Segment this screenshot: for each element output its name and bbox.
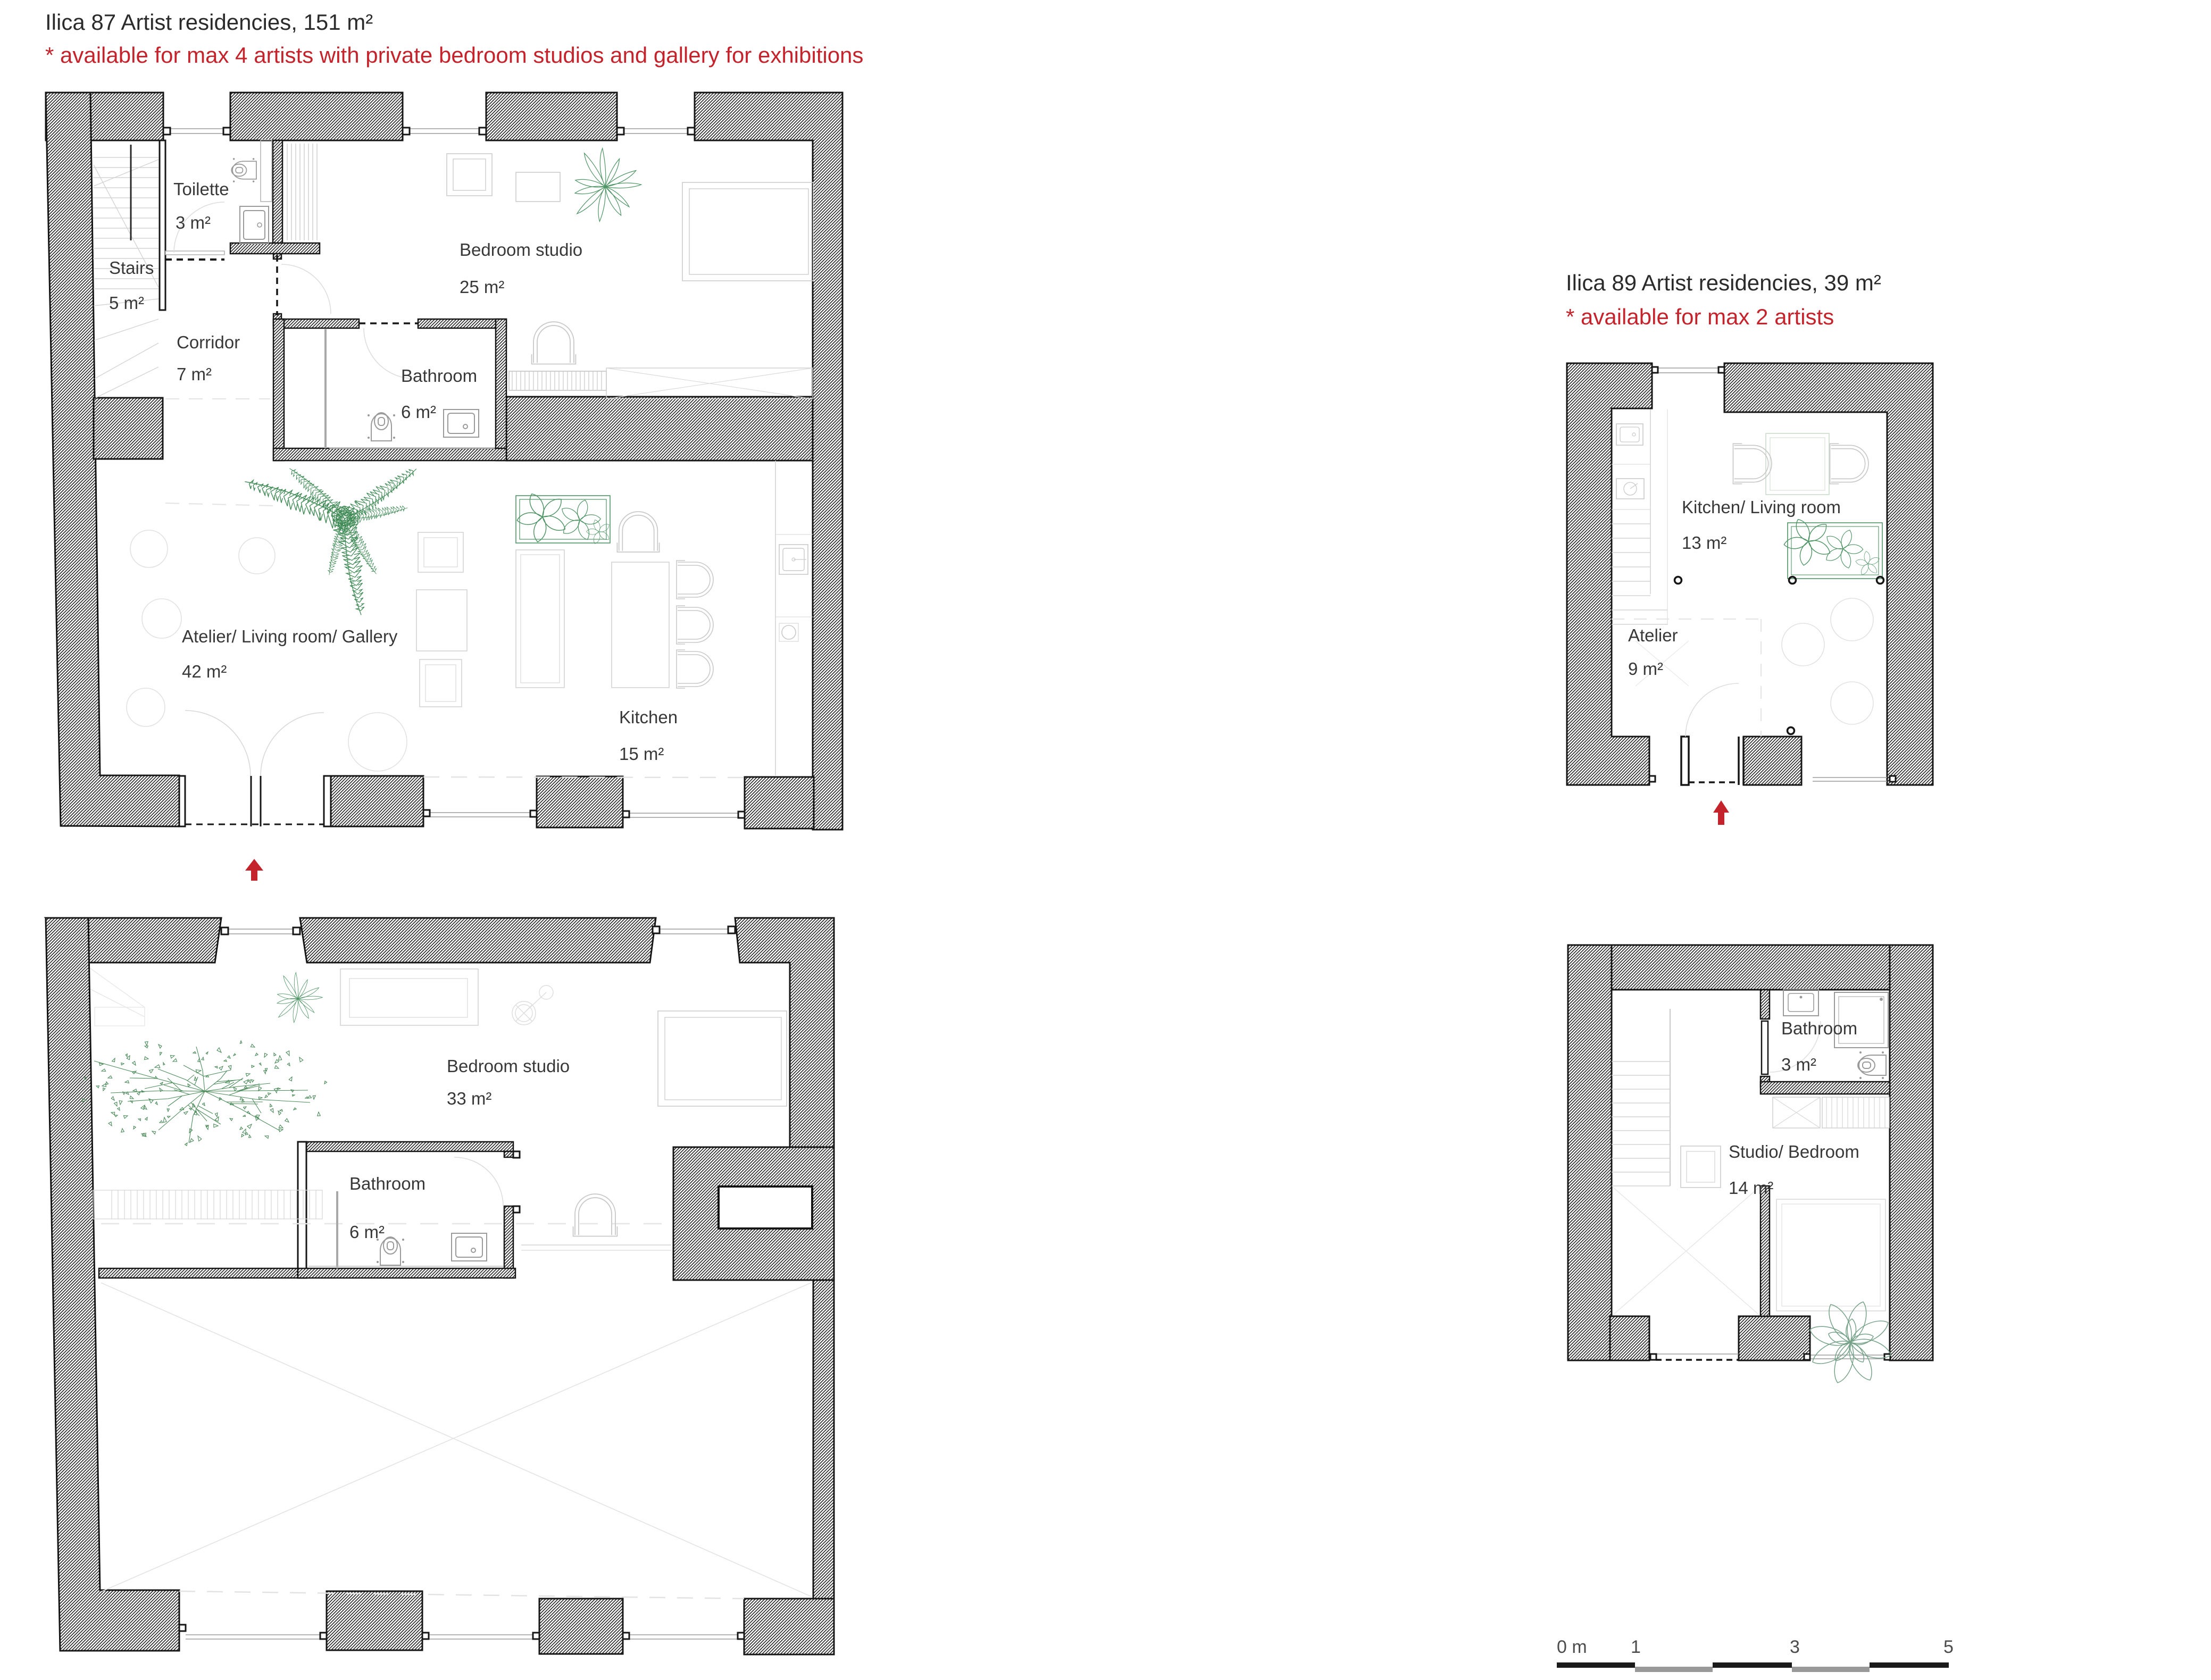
svg-text:14 m²: 14 m² <box>1729 1178 1773 1198</box>
svg-text:Stairs: Stairs <box>109 258 154 278</box>
svg-text:Kitchen/ Living room: Kitchen/ Living room <box>1682 497 1841 517</box>
svg-text:15 m²: 15 m² <box>619 744 664 764</box>
svg-text:Ilica 89 Artist residencies, 3: Ilica 89 Artist residencies, 39 m² <box>1566 270 1881 295</box>
svg-text:Bathroom: Bathroom <box>349 1174 425 1193</box>
svg-text:25 m²: 25 m² <box>460 277 504 297</box>
svg-text:0 m: 0 m <box>1557 1637 1587 1657</box>
svg-text:* available for max 4 artists: * available for max 4 artists with priva… <box>45 43 863 68</box>
svg-text:1: 1 <box>1631 1637 1641 1657</box>
svg-text:6 m²: 6 m² <box>349 1222 385 1242</box>
svg-text:Toilette: Toilette <box>173 179 229 199</box>
svg-text:13 m²: 13 m² <box>1682 533 1726 553</box>
svg-text:42 m²: 42 m² <box>182 662 227 681</box>
svg-text:3 m²: 3 m² <box>1781 1055 1816 1074</box>
svg-text:33 m²: 33 m² <box>447 1089 491 1108</box>
svg-text:Studio/ Bedroom: Studio/ Bedroom <box>1729 1142 1859 1161</box>
svg-text:Corridor: Corridor <box>177 332 240 352</box>
svg-text:Bathroom: Bathroom <box>1781 1018 1857 1038</box>
svg-text:6 m²: 6 m² <box>401 402 436 422</box>
svg-text:3: 3 <box>1790 1637 1800 1657</box>
svg-text:Atelier/ Living room/ Gallery: Atelier/ Living room/ Gallery <box>182 626 398 646</box>
svg-text:5: 5 <box>1943 1637 1954 1657</box>
svg-text:* available for max 2 artists: * available for max 2 artists <box>1566 304 1834 329</box>
svg-text:5 m²: 5 m² <box>109 293 144 313</box>
svg-text:Bedroom studio: Bedroom studio <box>460 240 582 260</box>
svg-text:7 m²: 7 m² <box>177 364 212 384</box>
svg-text:3 m²: 3 m² <box>176 213 211 232</box>
svg-text:Bedroom studio: Bedroom studio <box>447 1056 570 1076</box>
svg-text:Kitchen: Kitchen <box>619 707 678 727</box>
svg-text:Atelier: Atelier <box>1628 625 1678 645</box>
svg-text:Ilica 87 Artist residencies, 1: Ilica 87 Artist residencies, 151 m² <box>45 10 373 35</box>
svg-text:9 m²: 9 m² <box>1628 659 1663 679</box>
svg-text:Bathroom: Bathroom <box>401 366 477 386</box>
